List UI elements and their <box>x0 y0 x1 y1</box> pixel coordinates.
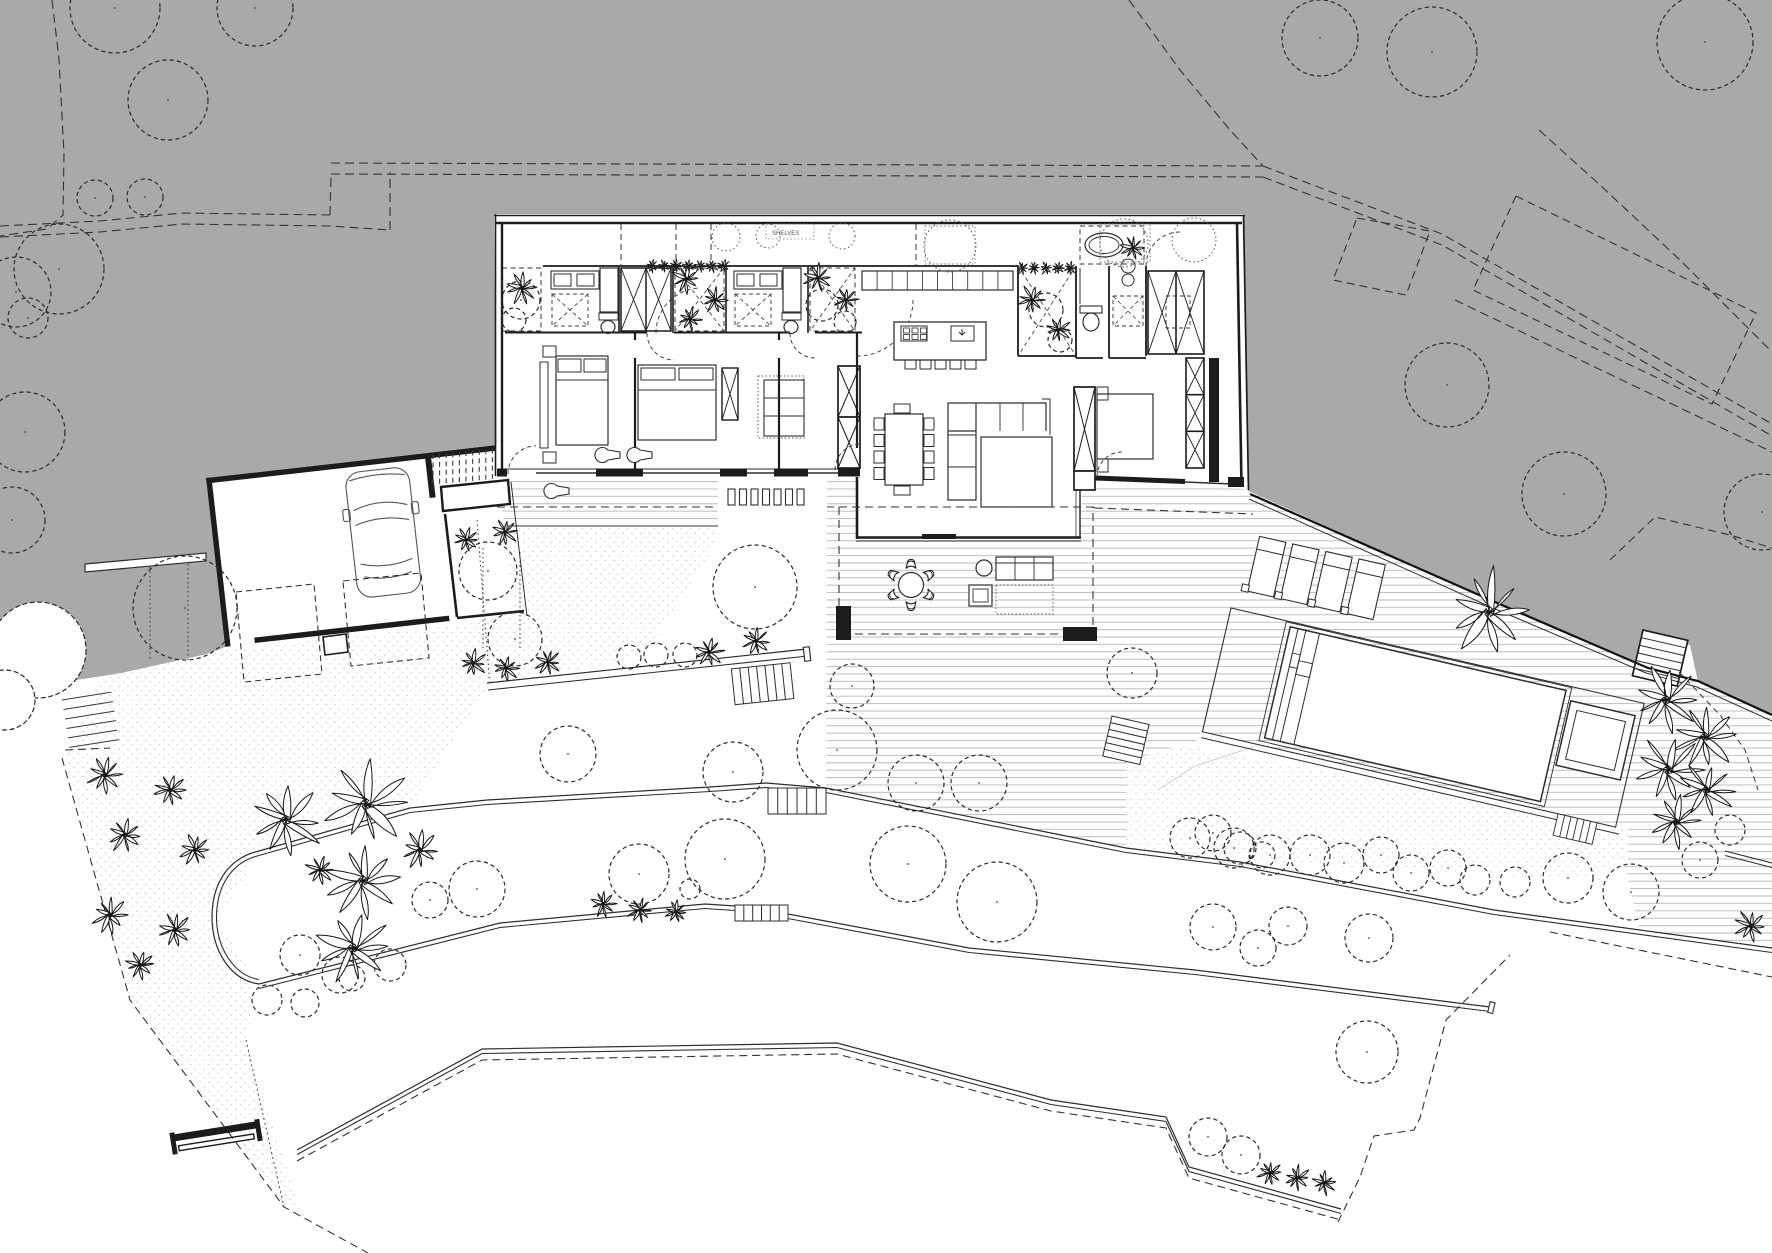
svg-text:SHELVES: SHELVES <box>772 231 799 237</box>
